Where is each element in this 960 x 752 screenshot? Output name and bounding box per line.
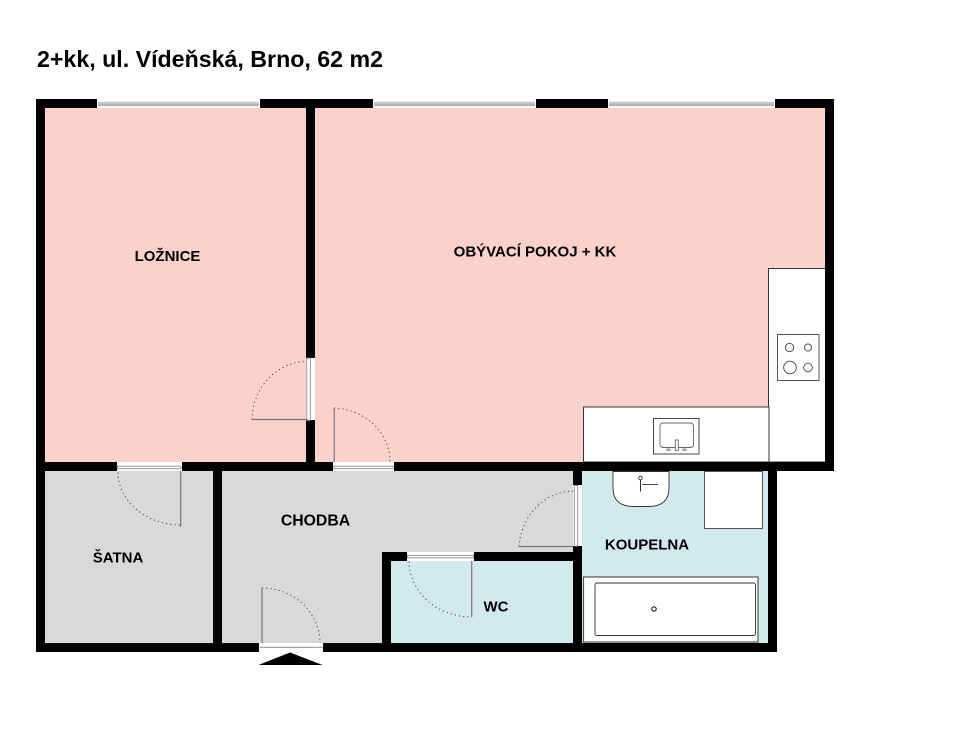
- svg-text:ŠATNA: ŠATNA: [93, 549, 144, 567]
- svg-text:KOUPELNA: KOUPELNA: [605, 537, 689, 554]
- svg-text:CHODBA: CHODBA: [281, 513, 350, 530]
- svg-text:WC: WC: [484, 599, 509, 616]
- svg-text:2+kk, ul. Vídeňská, Brno, 62 m: 2+kk, ul. Vídeňská, Brno, 62 m2: [37, 46, 383, 72]
- svg-text:OBÝVACÍ POKOJ + KK: OBÝVACÍ POKOJ + KK: [454, 243, 617, 261]
- svg-text:LOŽNICE: LOŽNICE: [135, 247, 201, 265]
